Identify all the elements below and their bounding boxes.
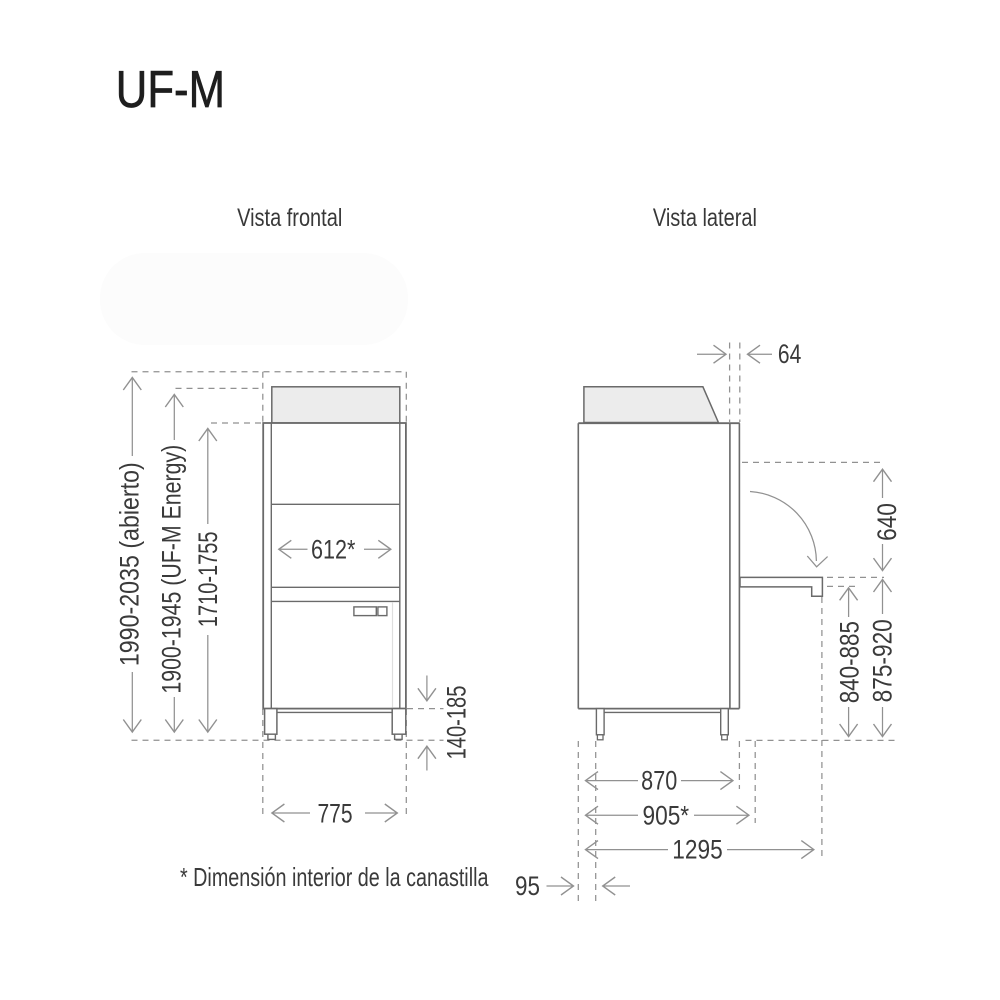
- svg-text:UF-M: UF-M: [116, 62, 225, 119]
- svg-text:612*: 612*: [311, 535, 356, 565]
- svg-text:140-185: 140-185: [442, 686, 473, 760]
- svg-text:* Dimensión interior de la can: * Dimensión interior de la canastilla: [180, 863, 489, 892]
- svg-text:775: 775: [317, 799, 352, 829]
- svg-text:Vista lateral: Vista lateral: [653, 204, 757, 232]
- svg-text:640: 640: [872, 503, 902, 541]
- svg-text:1900-1945 (UF-M Energy): 1900-1945 (UF-M Energy): [157, 445, 187, 694]
- svg-text:875-920: 875-920: [868, 619, 898, 702]
- svg-text:1710-1755: 1710-1755: [193, 532, 224, 628]
- svg-text:1990-2035 (abierto): 1990-2035 (abierto): [115, 462, 145, 666]
- svg-text:95: 95: [515, 872, 540, 901]
- svg-text:870: 870: [641, 766, 677, 796]
- svg-text:840-885: 840-885: [836, 621, 865, 703]
- svg-text:64: 64: [778, 340, 801, 370]
- svg-text:Vista frontal: Vista frontal: [237, 204, 342, 232]
- svg-text:905*: 905*: [642, 800, 689, 830]
- svg-text:1295: 1295: [672, 834, 722, 864]
